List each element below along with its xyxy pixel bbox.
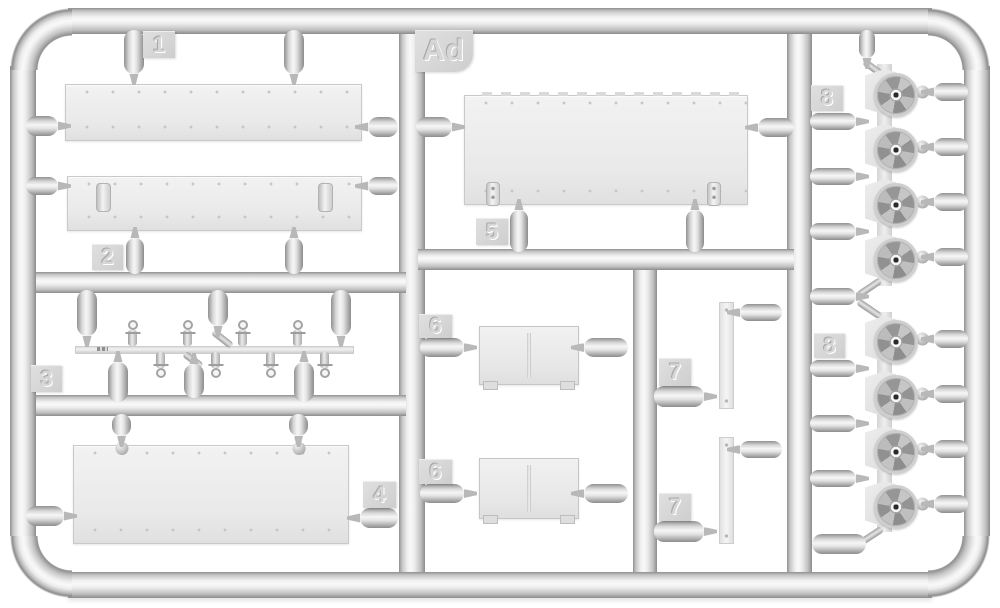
sprue-gate (934, 330, 968, 348)
part-tag-5: 5 (476, 218, 508, 245)
sprue-gate (289, 414, 308, 436)
sprue-gate (686, 210, 704, 252)
part-7-strip (719, 302, 734, 409)
part-6-box-foot (560, 515, 575, 524)
sprue-gate (420, 338, 464, 357)
wheel-hub (890, 199, 903, 212)
part-tag-8a: 8 (811, 85, 843, 111)
sprue-gate (108, 362, 128, 402)
sprue-frame-corner-tl (10, 8, 72, 70)
part-8-wheel (874, 128, 918, 172)
sprue-gate (126, 238, 144, 274)
sprue-id-tag: Ad (415, 30, 473, 72)
sprue-gate (934, 83, 968, 101)
sprue-gate (812, 534, 866, 554)
sprue-gate (934, 248, 968, 266)
sprue-gate (284, 30, 304, 74)
part-5-peg (486, 182, 500, 206)
sprue-gate (584, 484, 628, 503)
sprue-frame-left (10, 66, 36, 536)
sprue-gate (810, 415, 856, 432)
sprue-gate (810, 360, 856, 377)
sprue-gate (810, 113, 856, 130)
sprue-gate (934, 440, 968, 458)
part-3-shock-absorber (293, 330, 302, 346)
runner-vertical-3 (787, 28, 812, 578)
part-3-shock-absorber (128, 330, 137, 346)
sprue-frame-corner-tr (928, 8, 990, 70)
part-3-shock-absorber (266, 352, 275, 368)
sprue-gate (510, 210, 528, 252)
part-tag-4: 4 (363, 481, 396, 508)
sprue-gate (810, 470, 856, 487)
sprue-gate (184, 364, 204, 398)
sprue-gate (368, 177, 398, 195)
part-8-wheel (874, 485, 918, 529)
part-7-strip (719, 437, 734, 544)
sprue-gate (294, 362, 314, 402)
sprue-gate (26, 116, 58, 136)
part-8-wheel (874, 320, 918, 364)
sprue-gate (112, 414, 131, 436)
wheel-hub (890, 391, 903, 404)
part-tag-1: 1 (143, 31, 175, 58)
part-tag-6b: 6 (419, 459, 452, 484)
sprue-gate (416, 117, 452, 137)
part-3-shock-absorber (183, 330, 192, 346)
wheel-hub (890, 144, 903, 157)
wheel-hub (890, 89, 903, 102)
sprue-gate (934, 495, 968, 513)
part-3-rail-marks (97, 347, 108, 351)
part-tag-6a: 6 (419, 314, 452, 338)
wheel-hub (890, 336, 903, 349)
part-6-box (479, 458, 579, 519)
sprue-gate (124, 30, 144, 74)
sprue-gate (654, 386, 704, 407)
sprue-gate (810, 288, 856, 305)
part-3-shock-absorber (238, 330, 247, 346)
part-6-box-foot (560, 381, 575, 390)
part-2-peg (318, 183, 333, 212)
part-tag-8b: 8 (814, 333, 845, 358)
sprue-gate (810, 168, 856, 185)
runner-horizontal-left-lower (30, 395, 406, 416)
sprue-diagram: Ad 1 2 3 4 5 6 6 7 7 8 8 (0, 0, 1000, 608)
sprue-gate (77, 290, 97, 336)
part-6-box-foot (483, 381, 498, 390)
sprue-frame-bottom (68, 572, 932, 598)
sprue-gate (584, 338, 628, 357)
sprue-gate (208, 290, 228, 326)
sprue-gate (654, 521, 704, 542)
sprue-gate (758, 118, 794, 137)
sprue-frame-corner-br (928, 536, 990, 598)
part-3-shock-absorber (211, 352, 220, 368)
part-6-box (479, 326, 579, 385)
sprue-gate (360, 508, 398, 528)
part-4-panel (73, 445, 349, 544)
sprue-gate (420, 484, 464, 503)
sprue-gate (934, 138, 968, 156)
part-8-wheel (874, 183, 918, 227)
sprue-gate (859, 30, 875, 58)
sprue-frame-corner-bl (10, 536, 72, 598)
part-2-peg (96, 183, 111, 212)
part-tag-2: 2 (92, 244, 123, 270)
sprue-gate (331, 290, 351, 336)
part-5-panel (464, 95, 748, 205)
sprue-gate (934, 193, 968, 211)
part-6-box-foot (483, 515, 498, 524)
part-tag-7a: 7 (659, 358, 691, 386)
part-tag-3: 3 (31, 365, 62, 392)
part-5-peg (707, 182, 721, 206)
sprue-gate (740, 304, 782, 321)
part-8-wheel (874, 375, 918, 419)
sprue-gate (26, 177, 58, 195)
wheel-hub (890, 446, 903, 459)
part-3-shock-absorber (156, 352, 165, 368)
sprue-frame-right (964, 66, 990, 536)
part-8-wheel (874, 238, 918, 282)
wheel-hub (890, 254, 903, 267)
wheel-hub (890, 501, 903, 514)
sprue-gate (740, 441, 782, 458)
part-8-wheel (874, 73, 918, 117)
sprue-gate (368, 117, 398, 137)
runner-horizontal-middle (418, 249, 794, 270)
sprue-gate (285, 238, 303, 274)
part-8-wheel (874, 430, 918, 474)
sprue-frame-top (68, 8, 932, 34)
sprue-gate (26, 506, 64, 526)
part-3-shock-absorber (320, 352, 329, 368)
part-1-panel (65, 84, 362, 141)
sprue-gate (934, 385, 968, 403)
sprue-gate (810, 223, 856, 240)
sprue-connector (856, 299, 882, 320)
part-tag-7b: 7 (659, 493, 691, 521)
